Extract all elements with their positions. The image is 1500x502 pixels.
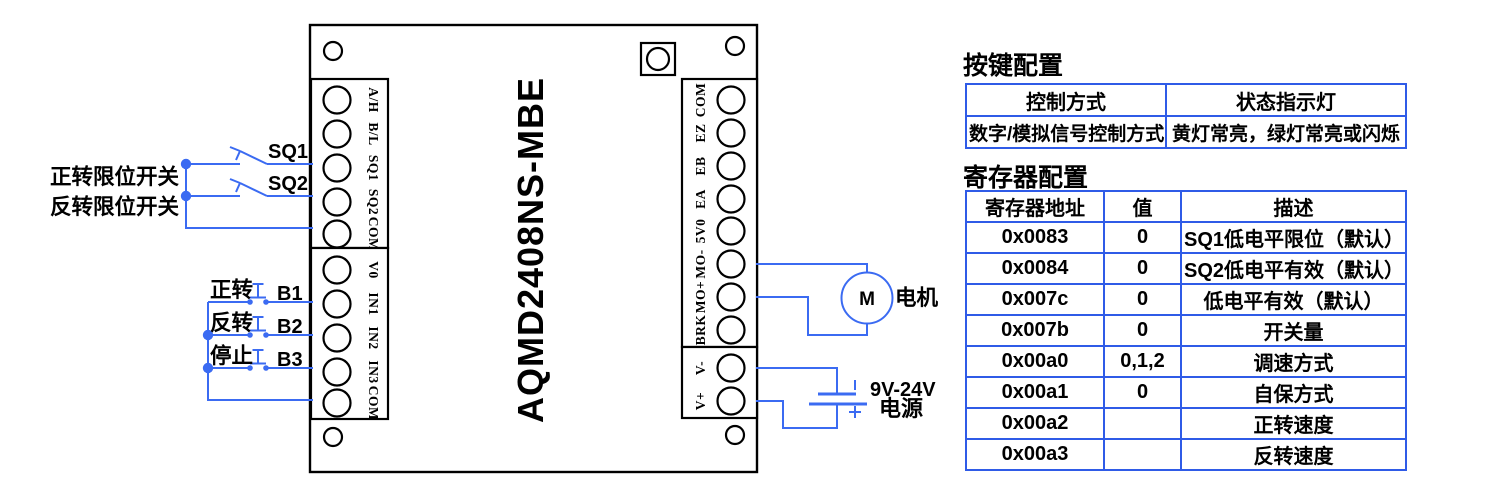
register-value-cell [1104,408,1181,439]
register-value-cell: 0,1,2 [1104,346,1181,377]
right-terminal-block-2: V- V+ [682,347,757,418]
terminal-circle [718,218,745,245]
register-desc-cell: 自保方式 [1181,377,1406,408]
contact-dot [263,299,269,305]
terminal-label: IN2 [366,326,381,349]
register-value-cell: 0 [1104,222,1181,253]
motor-label: 电机 [895,286,939,310]
terminal-circle [324,221,351,248]
b3-label: B3 [277,349,303,371]
terminal-label: COM [366,217,381,252]
table-row: 0x007b 0 开关量 [966,315,1406,346]
terminal-circle [324,87,351,114]
mounting-hole-icon [324,42,342,60]
terminal-circle [718,186,745,213]
terminal-label: COM [366,386,381,421]
terminal-circle [324,121,351,148]
right-terminal-block-1: COM EZ EB EA 5V0 MO- MO+ BRK [682,79,757,347]
register-desc-cell: 正转速度 [1181,408,1406,439]
switch-actuator [230,179,240,183]
switch-actuator [236,151,240,160]
register-value-cell [1104,439,1181,470]
register-address-cell: 0x00a1 [966,377,1104,408]
switch-actuator [236,183,240,192]
left-terminal-block-1: A/H B/L SQ1 SQ2 COM [311,79,388,251]
register-address-cell: 0x007b [966,315,1104,346]
forward-button-label: 正转 [210,277,254,302]
left-terminal-block-2: V0 IN1 IN2 IN3 COM [311,248,388,420]
key-config-table: 控制方式 状态指示灯 数字/模拟信号控制方式 黄灯常亮，绿灯常亮或闪烁 [965,83,1407,149]
terminal-label: MO- [693,249,708,278]
terminal-label: SQ2 [366,189,381,215]
terminal-label: V0 [366,261,381,279]
key-config-header-control-mode: 控制方式 [966,84,1166,116]
terminal-label: IN3 [366,360,381,383]
contact-dot [263,332,269,338]
switch-blade [240,183,267,196]
controller-board: AQMD2408NS-MBE A/H B/L SQ1 SQ2 COM V0 IN… [310,25,757,472]
sq1-limit-switch-symbol [230,147,267,164]
junction-dot [181,191,191,201]
register-header-value: 值 [1104,191,1181,222]
terminal-circle [718,388,745,415]
register-desc-cell: 低电平有效（默认） [1181,284,1406,315]
terminal-circle [718,251,745,278]
limit-switch-circuit: SQ1 SQ2 正转限位开关 反转限位开关 [50,141,313,228]
table-row: 0x0084 0 SQ2低电平有效（默认） [966,253,1406,284]
wiring-diagram: AQMD2408NS-MBE A/H B/L SQ1 SQ2 COM V0 IN… [0,0,960,502]
table-row: 0x00a3 反转速度 [966,439,1406,470]
register-value-cell: 0 [1104,377,1181,408]
register-value-cell: 0 [1104,284,1181,315]
terminal-label: EZ [693,123,708,142]
key-config-header-status-led: 状态指示灯 [1166,84,1406,116]
key-config-control-mode: 数字/模拟信号控制方式 [966,116,1166,148]
terminal-label: MO+ [693,281,708,313]
terminal-label: 5V0 [693,219,708,244]
board-pushbutton-icon [641,43,675,75]
wiring-diagram-page: AQMD2408NS-MBE A/H B/L SQ1 SQ2 COM V0 IN… [0,0,1500,502]
pushbutton-cap [647,48,669,70]
terminal-circle [324,257,351,284]
sq1-label: SQ1 [268,141,308,163]
b1-label: B1 [277,283,303,305]
terminal-label: BRK [693,315,708,346]
terminal-circle [324,359,351,386]
contact-dot [263,365,269,371]
terminal-label: V- [693,361,708,375]
table-header-row: 控制方式 状态指示灯 [966,84,1406,116]
register-address-cell: 0x0084 [966,253,1104,284]
key-config-title: 按键配置 [963,46,1063,82]
motor-m-symbol: M [859,289,875,310]
table-row: 0x00a1 0 自保方式 [966,377,1406,408]
mounting-hole-icon [324,428,342,446]
register-desc-cell: 反转速度 [1181,439,1406,470]
power-circuit: 9V-24V 电源 [756,368,936,428]
power-supply-label: 电源 [879,396,923,421]
table-row: 0x00a2 正转速度 [966,408,1406,439]
motor-circuit: M 电机 [756,264,939,335]
b2-label: B2 [277,316,303,338]
terminal-circle [324,189,351,216]
register-address-cell: 0x00a0 [966,346,1104,377]
terminal-label: IN1 [366,292,381,315]
register-address-cell: 0x00a3 [966,439,1104,470]
reverse-limit-switch-label: 反转限位开关 [50,194,180,219]
terminal-circle [718,120,745,147]
stop-button-label: 停止 [210,343,253,368]
register-config-table: 寄存器地址 值 描述 0x0083 0 SQ1低电平限位（默认） 0x0084 … [965,190,1407,471]
terminal-circle [718,284,745,311]
terminal-circle [324,390,351,417]
switch-actuator [230,147,240,151]
terminal-circle [718,87,745,114]
register-header-desc: 描述 [1181,191,1406,222]
reverse-button-label: 反转 [210,310,254,335]
terminal-circle [324,155,351,182]
register-value-cell: 0 [1104,315,1181,346]
table-row: 0x00a0 0,1,2 调速方式 [966,346,1406,377]
terminal-label: SQ1 [366,155,381,181]
register-address-cell: 0x00a2 [966,408,1104,439]
terminal-label: A/H [366,87,381,113]
register-desc-cell: SQ2低电平有效（默认） [1181,253,1406,284]
switch-blade [240,151,267,164]
sq2-label: SQ2 [268,173,308,195]
terminal-circle [324,325,351,352]
table-row: 0x0083 0 SQ1低电平限位（默认） [966,222,1406,253]
table-row: 数字/模拟信号控制方式 黄灯常亮，绿灯常亮或闪烁 [966,116,1406,148]
terminal-label: COM [693,83,708,118]
register-address-cell: 0x007c [966,284,1104,315]
wire [756,368,837,394]
register-desc-cell: 开关量 [1181,315,1406,346]
register-address-cell: 0x0083 [966,222,1104,253]
forward-limit-switch-label: 正转限位开关 [50,164,180,189]
button-circuit: 正转 反转 停止 B1 B2 B3 [203,277,313,400]
terminal-label: EA [693,189,708,209]
sq2-limit-switch-symbol [230,179,267,196]
key-config-status-led: 黄灯常亮，绿灯常亮或闪烁 [1166,116,1406,148]
table-header-row: 寄存器地址 值 描述 [966,191,1406,222]
mounting-hole-icon [726,37,744,55]
wire [756,264,867,273]
register-header-address: 寄存器地址 [966,191,1104,222]
terminal-circle [718,355,745,382]
junction-dot [181,159,191,169]
terminal-circle [718,317,745,344]
register-desc-cell: 调速方式 [1181,346,1406,377]
table-row: 0x007c 0 低电平有效（默认） [966,284,1406,315]
register-config-title: 寄存器配置 [963,158,1088,194]
terminal-circle [324,291,351,318]
board-model-title: AQMD2408NS-MBE [510,77,551,423]
terminal-label: V+ [693,392,708,410]
mounting-hole-icon [726,426,744,444]
register-desc-cell: SQ1低电平限位（默认） [1181,222,1406,253]
terminal-label: B/L [366,122,381,145]
terminal-circle [718,153,745,180]
register-value-cell: 0 [1104,253,1181,284]
terminal-label: EB [693,156,708,175]
